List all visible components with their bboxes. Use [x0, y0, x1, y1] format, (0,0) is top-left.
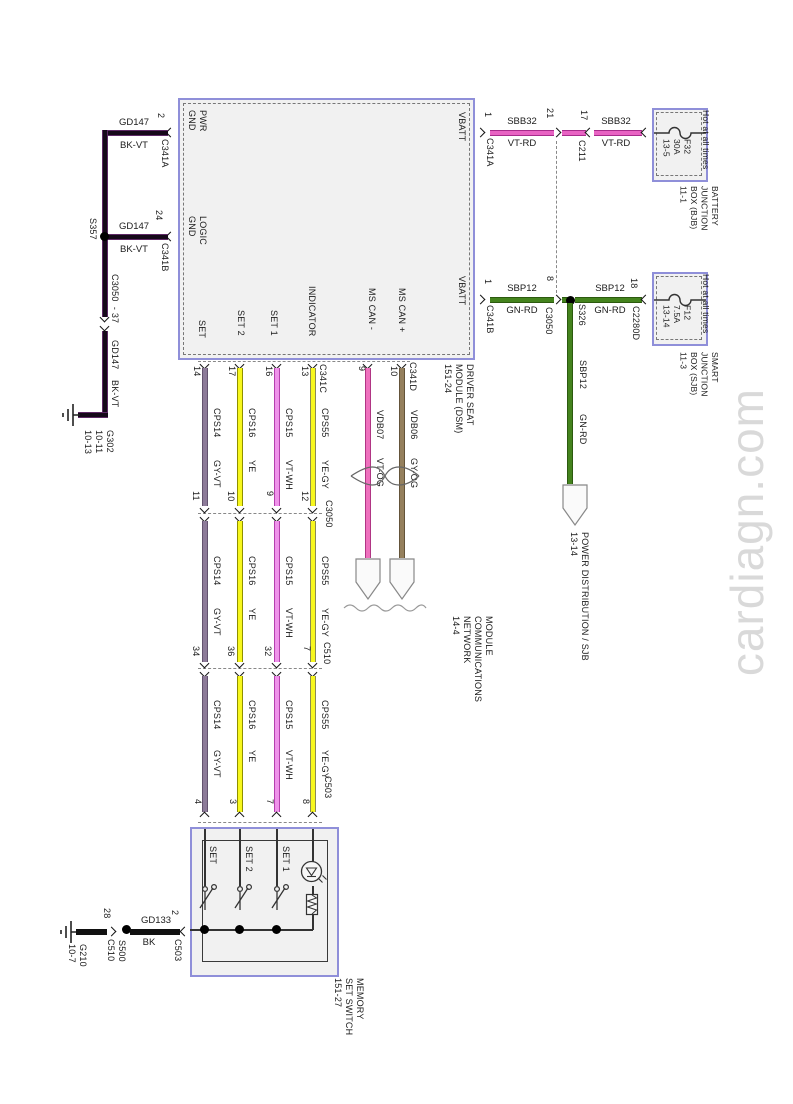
wire-color-label: YE-GY — [319, 608, 330, 637]
inline-connector-label: C3050 - 37 — [109, 274, 120, 323]
wire-gd147-pwr — [102, 130, 168, 136]
wire-color-label: YE — [246, 460, 257, 472]
connector-dashed-link — [198, 822, 322, 823]
junction-dot — [200, 925, 209, 934]
switch-blade-icon — [270, 884, 294, 910]
pin-number: 14 — [191, 366, 202, 376]
wire-color-label: BK — [133, 937, 165, 948]
wire-cps55-b — [310, 521, 316, 662]
wire-color-label: VT-WH — [283, 608, 294, 638]
connector-dashed-link — [198, 513, 322, 514]
connector-chevron — [272, 812, 282, 822]
fuse-label: F12 7.5A 13-14 — [661, 305, 693, 328]
wire-label: CPS15 — [283, 408, 294, 438]
ground-label: G302 10-11 10-13 — [82, 430, 115, 454]
wire-label: CPS16 — [246, 408, 257, 438]
pin-number: 10 — [225, 491, 236, 501]
twisted-pair-icon — [349, 462, 421, 490]
connector-chevron — [100, 322, 110, 332]
wire-sbp12-2 — [575, 297, 642, 303]
wire-sbb32-stub — [562, 130, 586, 136]
wire-cps55-a — [310, 368, 316, 506]
wire-color-label: VT-WH — [283, 460, 294, 490]
watermark: cardiagn.com — [720, 388, 774, 676]
module-pin-label-logic-gnd: LOGIC GND — [186, 216, 208, 245]
connector-chevron — [585, 128, 595, 138]
wire-cps14-a — [202, 368, 208, 506]
connector-chevron — [641, 128, 651, 138]
switch-name-label: MEMORY SET SWITCH 151-27 — [332, 978, 365, 1035]
switch-label-set1: SET 1 — [280, 846, 291, 872]
pin-number: 34 — [190, 646, 201, 656]
inline-connector-dashed-link — [556, 141, 557, 293]
connector-chevron — [235, 812, 245, 822]
wire-label: CPS16 — [246, 556, 257, 586]
wire-color-label: BK-VT — [109, 380, 120, 408]
connector-label: C2280D — [630, 306, 641, 340]
wire-label: CPS55 — [319, 556, 330, 586]
dsm-module-inner-dashed-border — [183, 103, 470, 355]
module-pin-label-pwr-gnd: PWR GND — [186, 110, 208, 132]
wire-color-label: GN-RD — [584, 305, 636, 316]
pin-number: 7 — [264, 799, 275, 804]
wire-label: VDB07 — [374, 410, 385, 440]
wire-label: CPS16 — [246, 700, 257, 730]
connector-chevron — [200, 812, 210, 822]
sjb-name-label: SMART JUNCTION BOX (SJB) 11-3 — [678, 352, 720, 397]
pin-number: 10 — [388, 366, 399, 376]
pin-number: 11 — [190, 491, 201, 501]
switch-leg — [276, 829, 278, 886]
wire-label: GD147 — [109, 340, 120, 370]
wire-sbp12-branch — [567, 303, 573, 484]
pin-number: 16 — [263, 366, 274, 376]
hot-at-all-times-label: Hot at all times — [700, 274, 711, 333]
wire-color-label: GY-VT — [211, 750, 222, 778]
ground-icon — [58, 917, 78, 947]
pin-number: 8 — [300, 799, 311, 804]
fuse-label: F32 30A 13-5 — [661, 139, 693, 157]
wire-cps14-b — [202, 521, 208, 662]
wire-color-label: YE — [246, 750, 257, 762]
wire-label: CPS14 — [211, 700, 222, 730]
wire-label: CPS15 — [283, 556, 294, 586]
connector-label: C510 — [321, 642, 332, 664]
wire-gd147-logic — [102, 234, 168, 240]
resistor-icon — [305, 893, 320, 916]
pin-number: 8 — [544, 276, 555, 281]
hot-at-all-times-label: Hot at all times — [700, 110, 711, 169]
pin-number: 12 — [299, 491, 310, 501]
wire-cps16-c — [237, 676, 243, 812]
offpage-arrow-icon — [562, 484, 588, 526]
wire-color-label: YE-GY — [319, 460, 330, 489]
connector-chevron — [308, 812, 318, 822]
pin-number: 13 — [299, 366, 310, 376]
offpage-arrow-icon — [389, 558, 415, 600]
module-pin-label-set: SET — [196, 320, 207, 338]
wire-label: GD133 — [133, 915, 179, 926]
wire-color-label: VT-RD — [492, 138, 552, 149]
wire-label: SBB32 — [492, 116, 552, 127]
connector-label: C510 — [105, 939, 116, 961]
module-pin-label-ms-can-minus: MS CAN - — [366, 288, 377, 330]
pin-number: 17 — [578, 110, 589, 120]
pin-number: 7 — [301, 646, 312, 651]
pin-number: 3 — [227, 799, 238, 804]
connector-chevron — [107, 927, 117, 937]
pin-number: 36 — [225, 646, 236, 656]
wire-sbp12-1 — [490, 297, 554, 303]
pin-number: 32 — [262, 646, 273, 656]
wire-cps14-c — [202, 676, 208, 812]
switch-blade-icon — [233, 884, 257, 910]
switch-label-set: SET — [207, 846, 218, 864]
connector-label: C503 — [172, 939, 183, 961]
wire-cps16-b — [237, 521, 243, 662]
ground-icon — [60, 400, 80, 430]
wire-sbb32-1 — [490, 130, 554, 136]
pin-number: 4 — [192, 799, 203, 804]
ground-label: G210 10-7 — [66, 944, 88, 967]
pin-number: 18 — [628, 278, 639, 288]
wire-label: SBP12 — [492, 283, 552, 294]
wire-sbb32-2 — [594, 130, 642, 136]
power-distribution-label: POWER DISTRIBUTION / SJB 13-14 — [568, 532, 590, 661]
junction-dot — [235, 925, 244, 934]
module-pin-label-vbatt-bottom: VBATT — [456, 276, 467, 305]
switch-label-set2: SET 2 — [243, 846, 254, 872]
wire-color-label: GY-VT — [211, 460, 222, 488]
connector-label: C3050 — [323, 500, 334, 528]
connector-chevron — [476, 128, 486, 138]
wire-cps16-a — [237, 368, 243, 506]
wire-cps55-c — [310, 676, 316, 812]
pin-number: 9 — [264, 491, 275, 496]
switch-leg — [204, 829, 206, 886]
pin-number: 17 — [226, 366, 237, 376]
module-pin-label-indicator: INDICATOR — [306, 286, 317, 336]
connector-label: C341C — [317, 364, 328, 393]
inline-connector-label: C211 — [576, 140, 587, 162]
wire-label: GD147 — [106, 117, 162, 128]
module-pin-label-set2: SET 2 — [235, 310, 246, 336]
wiring-diagram-page: PWR GND LOGIC GND VBATT VBATT SET SET 2 … — [0, 0, 793, 1104]
wire-color-label: BK-VT — [106, 244, 162, 255]
wire-color-label: VT-WH — [283, 750, 294, 780]
splice-label: S500 — [116, 940, 127, 962]
wire-label: VDB06 — [408, 410, 419, 440]
wire-color-label: GN-RD — [577, 414, 588, 445]
module-pin-label-vbatt-top: VBATT — [456, 112, 467, 141]
connector-label: C503 — [322, 776, 333, 798]
splice-dot — [100, 232, 109, 241]
connector-dashed-link — [198, 668, 322, 669]
led-leg — [312, 829, 314, 862]
wire-color-label: VT-RD — [590, 138, 642, 149]
wire-color-label: GY-VT — [211, 608, 222, 636]
offpage-arrow-icon — [355, 558, 381, 600]
connector-chevron — [180, 927, 190, 937]
wire-color-label: BK-VT — [106, 140, 162, 151]
wire-label: CPS55 — [319, 700, 330, 730]
module-pin-label-ms-can-plus: MS CAN + — [396, 288, 407, 332]
wire-label: CPS14 — [211, 556, 222, 586]
wire-gd147-vertical-lower — [102, 331, 108, 418]
pin-number: 24 — [153, 210, 164, 220]
module-pin-label-set1: SET 1 — [268, 310, 279, 336]
wire-gd147-vertical-upper — [102, 130, 108, 317]
inline-connector-label: C3050 — [543, 307, 554, 335]
break-wavy-line — [342, 602, 428, 614]
wire-gd133-2 — [130, 929, 180, 935]
wire-label: GD147 — [106, 221, 162, 232]
splice-label: S357 — [87, 218, 98, 240]
switch-blade-icon — [198, 884, 222, 910]
connector-dashed-link — [198, 361, 410, 362]
wire-label: CPS14 — [211, 408, 222, 438]
wire-color-label: YE-GY — [319, 750, 330, 779]
junction-dot — [272, 925, 281, 934]
wire-gd133-1 — [76, 929, 107, 935]
module-name-label: DRIVER SEAT MODULE (DSM) 151-24 — [442, 364, 475, 433]
wire-label: SBP12 — [577, 360, 588, 389]
pin-number: 28 — [101, 908, 112, 918]
led-leg — [312, 915, 314, 930]
wire-to-ground — [78, 412, 108, 418]
pin-number: 21 — [544, 108, 555, 118]
wire-label: SBB32 — [590, 116, 642, 127]
wire-label: CPS55 — [319, 408, 330, 438]
wire-color-label: YE — [246, 608, 257, 620]
wire-cps15-c — [274, 676, 280, 812]
wire-cps15-b — [274, 521, 280, 662]
connector-chevron — [476, 295, 486, 305]
switch-leg — [239, 829, 241, 886]
connector-label: C341D — [407, 362, 418, 391]
network-destination-label: MODULE COMMUNICATIONS NETWORK 14-4 — [450, 616, 494, 702]
wire-label: CPS15 — [283, 700, 294, 730]
connector-chevron — [641, 295, 651, 305]
bjb-name-label: BATTERY JUNCTION BOX (BJB) 11-1 — [678, 186, 720, 231]
led-icon — [299, 860, 326, 887]
wire-cps15-a — [274, 368, 280, 506]
pin-number: 2 — [169, 910, 180, 915]
